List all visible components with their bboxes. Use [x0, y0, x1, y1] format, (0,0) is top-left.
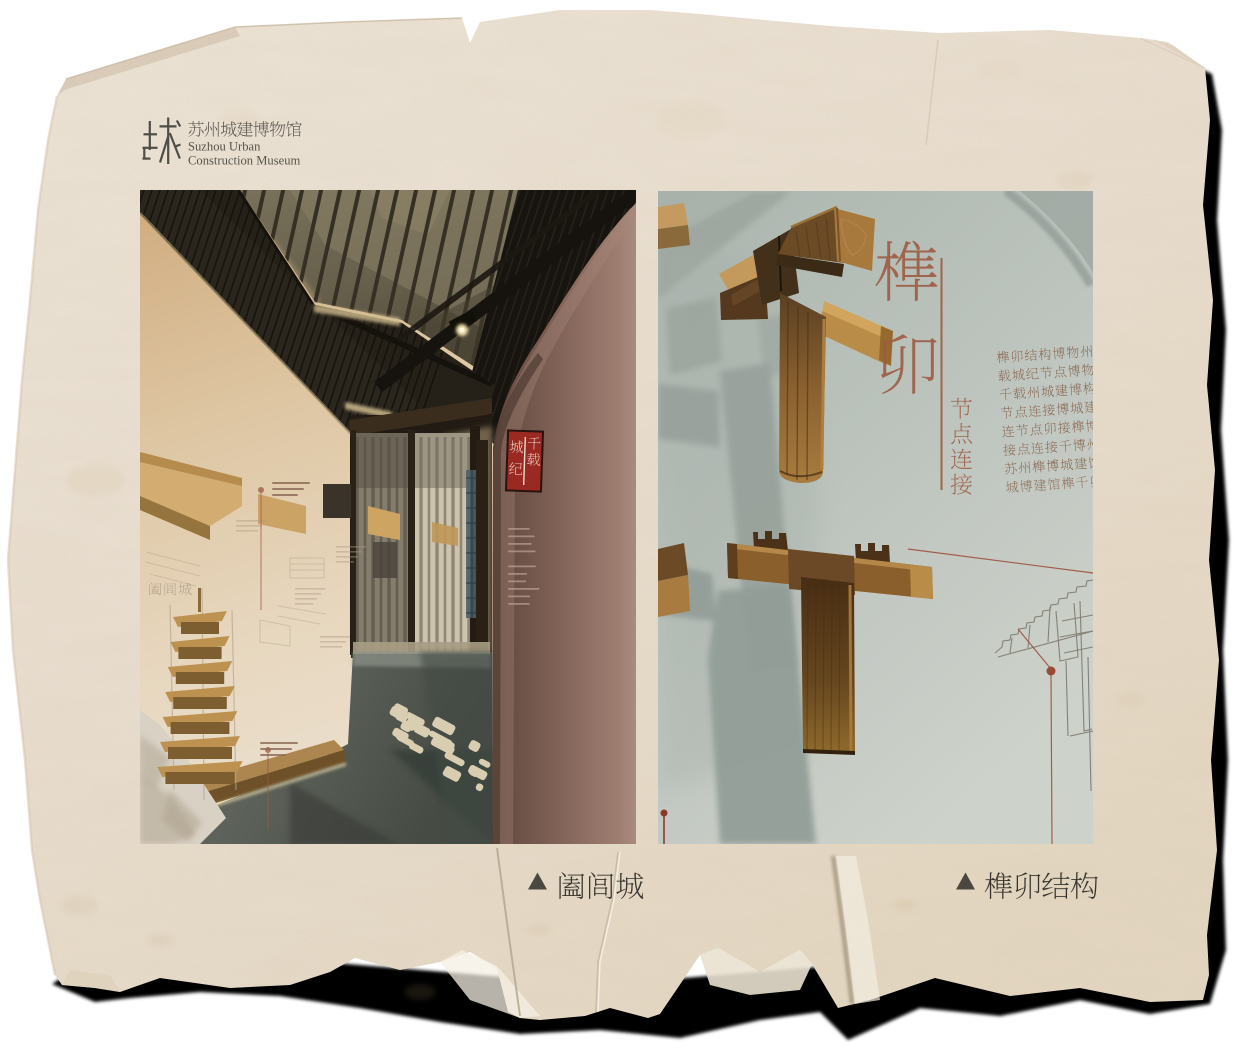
svg-text:Construction Museum: Construction Museum	[188, 153, 300, 167]
svg-text:Suzhou Urban: Suzhou Urban	[188, 140, 261, 154]
